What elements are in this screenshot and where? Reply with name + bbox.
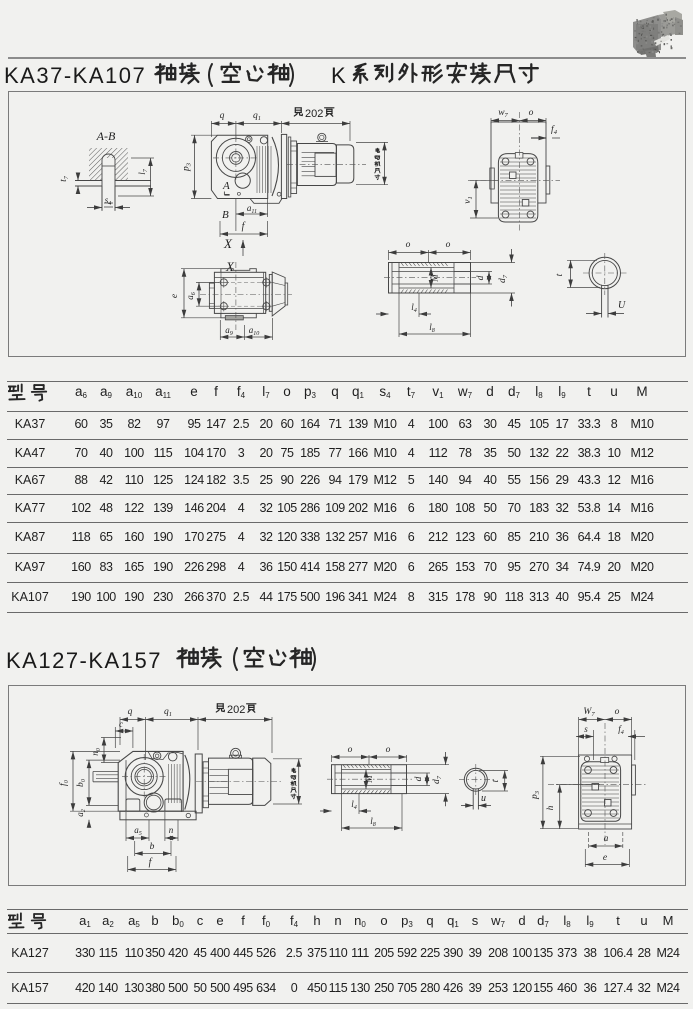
svg-text:X: X [225,259,235,274]
svg-text:M: M [364,775,374,784]
svg-text:l4: l4 [411,302,417,314]
svg-text:d7: d7 [498,274,509,283]
svg-text:202: 202 [227,704,245,716]
svg-text:l7: l7 [137,168,149,175]
svg-text:a9: a9 [225,325,233,337]
svg-text:t7: t7 [58,175,70,182]
svg-text:K: K [331,63,346,88]
svg-text:X: X [223,236,233,251]
svg-text:t: t [555,273,565,276]
svg-text:t: t [491,779,501,782]
svg-text:b: b [150,842,155,852]
svg-text:o: o [386,745,391,755]
svg-text:KA127-KA157: KA127-KA157 [6,648,162,673]
svg-text:c: c [119,719,123,729]
svg-text:w7: w7 [498,108,508,119]
svg-text:v1: v1 [463,196,474,203]
svg-text:l4: l4 [351,799,357,811]
svg-text:u: u [481,793,486,804]
svg-text:l8: l8 [429,322,435,334]
svg-text:A: A [222,180,230,192]
svg-text:A-B: A-B [96,129,116,143]
svg-text:s4: s4 [105,195,112,207]
svg-text:f4: f4 [551,124,558,136]
svg-text:KA37-KA107: KA37-KA107 [4,63,146,88]
svg-text:o: o [615,707,620,717]
svg-text:202: 202 [305,108,323,120]
svg-text:p3: p3 [530,790,541,800]
svg-text:l8: l8 [370,816,376,828]
svg-text:a6: a6 [185,291,197,300]
svg-text:b0: b0 [76,778,87,787]
svg-text:W7: W7 [583,707,595,718]
svg-text:s: s [584,724,588,734]
svg-text:a2: a2 [75,809,87,817]
svg-text:h: h [546,805,556,810]
svg-text:q: q [128,707,133,717]
svg-text:n: n [169,825,174,835]
svg-text:a5: a5 [134,825,142,837]
svg-text:U: U [618,300,626,311]
svg-text:q1: q1 [164,707,172,718]
svg-text:a11: a11 [247,203,257,215]
svg-text:q1: q1 [253,111,261,122]
svg-text:a: a [604,834,609,844]
svg-text:f4: f4 [618,724,624,736]
svg-text:d7: d7 [432,775,443,784]
svg-text:e: e [603,853,607,863]
svg-text:f: f [149,857,153,868]
svg-text:B: B [222,209,229,221]
svg-text:o: o [406,240,411,250]
svg-text:f0: f0 [58,779,70,786]
svg-text:n0: n0 [90,748,102,756]
svg-text:o: o [446,240,451,250]
svg-text:a10: a10 [249,325,260,337]
svg-text:o: o [348,745,353,755]
svg-text:q: q [220,111,225,121]
svg-text:f: f [242,221,246,232]
svg-text:e: e [170,294,180,298]
svg-text:M: M [430,274,440,283]
svg-text:o: o [529,108,534,118]
svg-text:d: d [476,275,486,280]
svg-text:d: d [414,776,424,781]
svg-text:p3: p3 [182,162,193,172]
